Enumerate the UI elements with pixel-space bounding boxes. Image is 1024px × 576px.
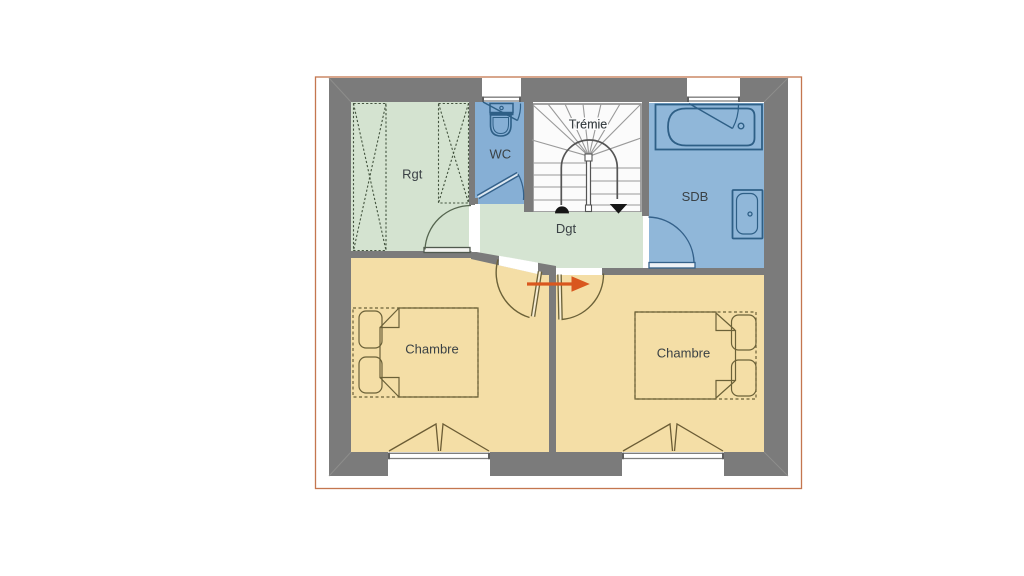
svg-text:Chambre: Chambre: [657, 346, 710, 361]
svg-text:WC: WC: [489, 147, 511, 162]
svg-text:Chambre: Chambre: [405, 342, 458, 357]
svg-text:Trémie: Trémie: [569, 118, 607, 132]
svg-text:Rgt: Rgt: [402, 167, 423, 182]
svg-text:SDB: SDB: [682, 189, 709, 204]
svg-text:Dgt: Dgt: [556, 221, 577, 236]
